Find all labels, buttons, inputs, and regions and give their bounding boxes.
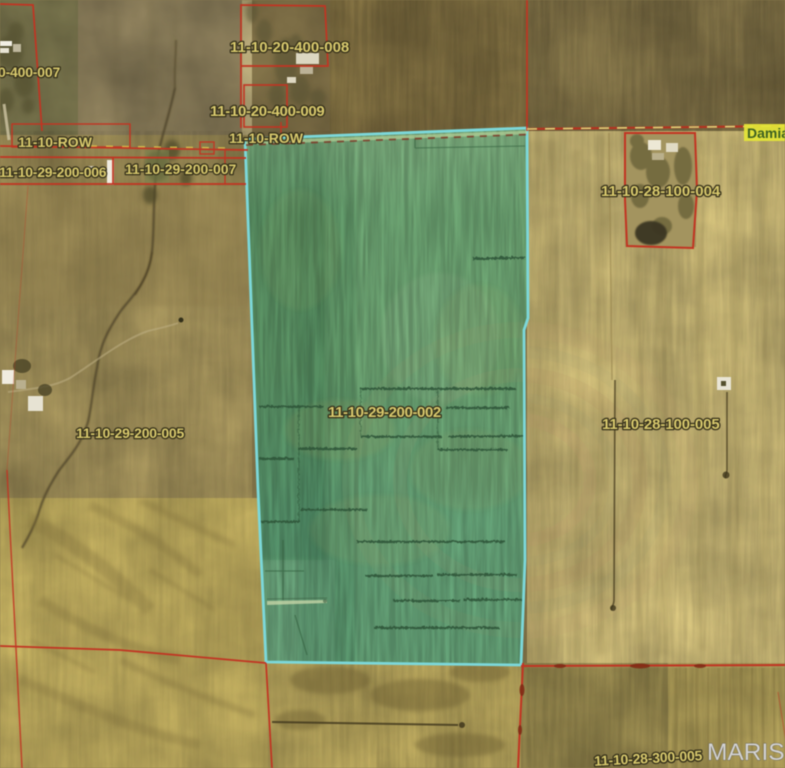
svg-text:11-10-ROW: 11-10-ROW xyxy=(18,134,93,150)
svg-text:0-400-007: 0-400-007 xyxy=(0,64,60,80)
svg-text:11-10-ROW: 11-10-ROW xyxy=(229,130,304,146)
svg-text:11-10-28-100-005: 11-10-28-100-005 xyxy=(602,416,720,433)
svg-text:MARIS: MARIS xyxy=(707,739,785,766)
svg-text:11-10-29-200-007: 11-10-29-200-007 xyxy=(125,161,237,177)
svg-text:Damian: Damian xyxy=(747,125,785,141)
svg-text:11-10-29-200-002: 11-10-29-200-002 xyxy=(328,404,441,421)
svg-text:11-10-29-200-005: 11-10-29-200-005 xyxy=(76,425,185,441)
svg-text:11-10-20-400-008: 11-10-20-400-008 xyxy=(230,39,349,56)
svg-text:11-10-28-100-004: 11-10-28-100-004 xyxy=(601,183,721,200)
svg-text:11-10-20-400-009: 11-10-20-400-009 xyxy=(210,103,324,120)
svg-text:11-10-29-200-006: 11-10-29-200-006 xyxy=(0,164,107,180)
